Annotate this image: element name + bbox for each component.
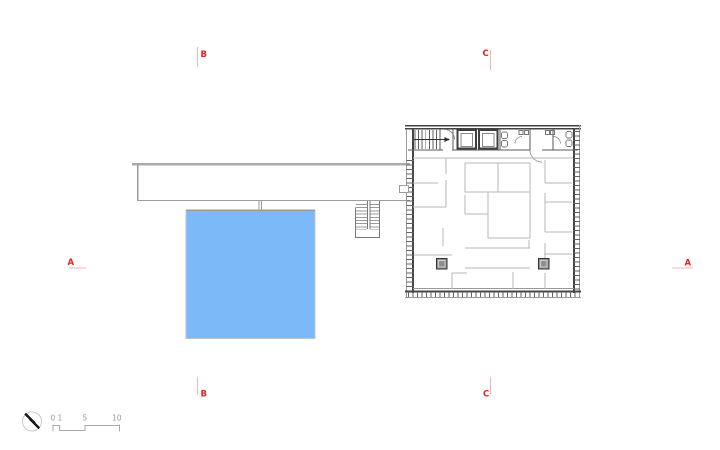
sink-icon bbox=[525, 131, 529, 135]
section-label-b-top: B bbox=[201, 50, 207, 60]
scale-bar-line bbox=[53, 425, 120, 432]
section-marker-b-top: B bbox=[197, 47, 207, 67]
scale-label-1: 1 bbox=[58, 414, 63, 423]
sink-icon bbox=[546, 131, 550, 135]
scale-and-north: 0 1 5 10 bbox=[23, 412, 122, 432]
door-swing-icon bbox=[530, 150, 542, 162]
elevator-shaft-1 bbox=[458, 130, 477, 149]
door-swing-icon bbox=[554, 137, 561, 144]
section-marker-a-right: A bbox=[672, 259, 693, 269]
building-facade bbox=[400, 125, 582, 298]
main-building bbox=[400, 125, 582, 298]
external-stair bbox=[356, 201, 380, 238]
scale-label-0: 0 bbox=[51, 414, 56, 423]
pool-water bbox=[186, 211, 315, 339]
section-marker-c-bottom: C bbox=[483, 377, 490, 400]
elevator-shaft-wall bbox=[479, 130, 498, 149]
section-label-b-bottom: B bbox=[201, 390, 207, 400]
internal-stair-direction-arrow-icon bbox=[445, 137, 451, 142]
structural-columns bbox=[437, 259, 550, 270]
section-label-c-bottom: C bbox=[483, 390, 489, 400]
section-label-c-top: C bbox=[483, 49, 489, 59]
washroom-fixtures bbox=[502, 131, 573, 163]
service-band bbox=[408, 129, 578, 162]
pool bbox=[186, 201, 315, 339]
scale-bar: 0 1 5 10 bbox=[51, 414, 122, 432]
sink-icon bbox=[519, 131, 523, 135]
section-marker-b-bottom: B bbox=[197, 377, 207, 400]
column-right bbox=[539, 259, 550, 270]
elevator-shaft-2 bbox=[479, 130, 498, 149]
internal-stair bbox=[414, 130, 455, 143]
link-bar bbox=[132, 163, 410, 201]
scale-label-5: 5 bbox=[83, 414, 88, 423]
north-arrow-icon bbox=[23, 412, 42, 431]
toilet-icon bbox=[502, 132, 508, 139]
section-markers: B C A A B C bbox=[68, 47, 694, 400]
section-marker-a-left: A bbox=[68, 258, 87, 268]
scale-label-10: 10 bbox=[112, 414, 122, 423]
floor-plan-canvas: B C A A B C bbox=[0, 0, 720, 450]
floor-plan-page: B C A A B C bbox=[0, 0, 720, 450]
toilet-icon bbox=[566, 140, 572, 147]
column-left bbox=[437, 259, 448, 270]
door-swing-icon bbox=[515, 137, 522, 144]
section-marker-c-top: C bbox=[483, 49, 491, 70]
toilet-icon bbox=[566, 132, 572, 139]
facade-left-ledge bbox=[400, 186, 409, 193]
section-label-a-right: A bbox=[685, 259, 692, 269]
section-label-a-left: A bbox=[68, 258, 75, 268]
elevator-shaft-wall bbox=[458, 130, 477, 149]
toilet-icon bbox=[502, 141, 508, 148]
